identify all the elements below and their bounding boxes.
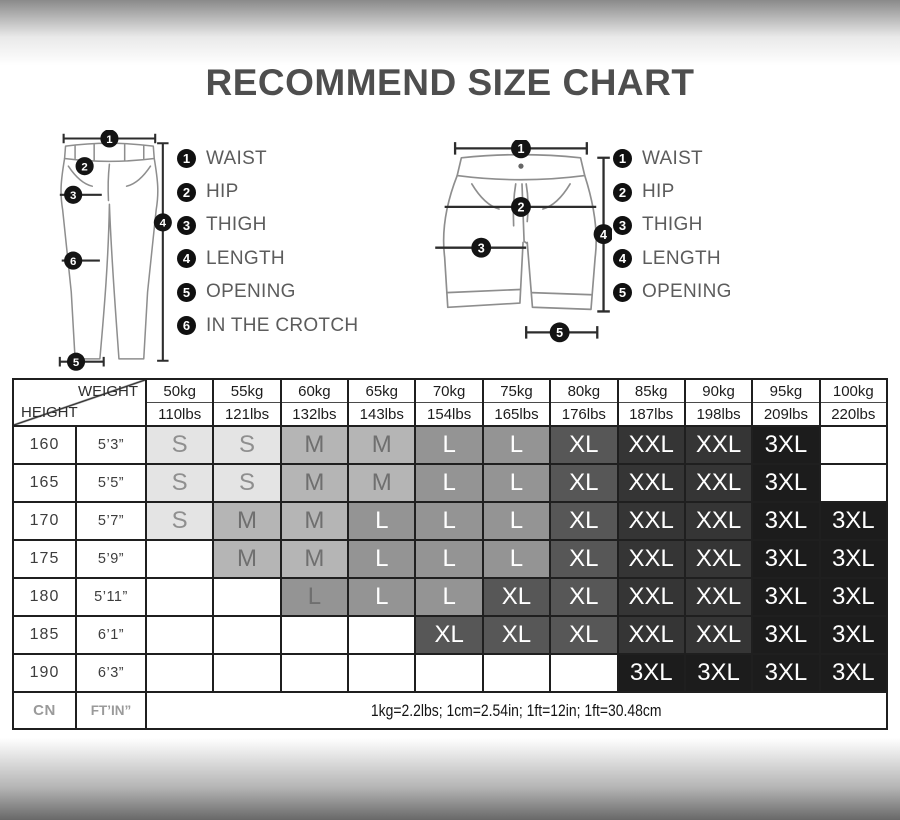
legend-item: 4 LENGTH xyxy=(613,242,732,275)
size-cell: XL xyxy=(550,464,617,502)
size-cell: XXL xyxy=(618,464,685,502)
height-ftin-cell: 6’1” xyxy=(76,616,146,654)
size-cell: XL xyxy=(550,616,617,654)
legend-item: 3 THIGH xyxy=(613,209,732,242)
size-cell: L xyxy=(415,502,482,540)
legend-label: WAIST xyxy=(206,148,267,170)
size-cell: M xyxy=(281,502,348,540)
weight-kg-header: 75kg xyxy=(483,379,550,403)
weight-lbs-header: 143lbs xyxy=(348,403,415,427)
size-cell: XXL xyxy=(618,426,685,464)
legend-label: OPENING xyxy=(206,281,296,303)
weight-kg-header: 90kg xyxy=(685,379,752,403)
pants-marker-3: 3 xyxy=(64,186,82,204)
height-ftin-cell: 5’7” xyxy=(76,502,146,540)
size-cell: L xyxy=(483,464,550,502)
size-cell: 3XL xyxy=(752,654,819,692)
size-cell: XL xyxy=(550,540,617,578)
weight-lbs-header: 209lbs xyxy=(752,403,819,427)
pants-outline xyxy=(61,143,158,359)
weight-kg-header: 50kg xyxy=(146,379,213,403)
size-cell: 3XL xyxy=(820,654,887,692)
size-cell xyxy=(213,616,280,654)
size-cell: M xyxy=(213,540,280,578)
size-cell: 3XL xyxy=(820,616,887,654)
legend-label: THIGH xyxy=(642,214,703,236)
size-cell: S xyxy=(146,426,213,464)
svg-text:4: 4 xyxy=(160,218,167,230)
size-cell: L xyxy=(483,502,550,540)
cn-unit-label: CN xyxy=(13,692,76,729)
numbered-disc: 3 xyxy=(177,216,196,235)
size-cell: S xyxy=(146,502,213,540)
numbered-disc: 1 xyxy=(613,149,632,168)
weight-lbs-header: 154lbs xyxy=(415,403,482,427)
height-cm-cell: 160 xyxy=(13,426,76,464)
size-cell xyxy=(415,654,482,692)
height-cm-cell: 175 xyxy=(13,540,76,578)
footer-row: CN FT’IN” 1kg=2.2lbs; 1cm=2.54in; 1ft=12… xyxy=(13,692,887,729)
svg-text:3: 3 xyxy=(478,241,485,255)
weight-lbs-header: 132lbs xyxy=(281,403,348,427)
size-cell: XXL xyxy=(685,540,752,578)
size-cell: 3XL xyxy=(685,654,752,692)
height-cm-cell: 190 xyxy=(13,654,76,692)
weight-lbs-header: 110lbs xyxy=(146,403,213,427)
size-cell: M xyxy=(281,464,348,502)
legend-item: 6 IN THE CROTCH xyxy=(177,309,358,342)
numbered-disc: 2 xyxy=(177,183,196,202)
size-cell: XL xyxy=(550,426,617,464)
size-cell: L xyxy=(483,540,550,578)
size-cell xyxy=(820,426,887,464)
size-cell: M xyxy=(348,426,415,464)
size-cell: XL xyxy=(415,616,482,654)
size-cell: XXL xyxy=(685,616,752,654)
weight-axis-label: WEIGHT xyxy=(78,383,138,400)
weight-kg-header: 85kg xyxy=(618,379,685,403)
pants-marker-1: 1 xyxy=(100,130,118,148)
pants-marker-2: 2 xyxy=(76,157,94,175)
weight-kg-header: 55kg xyxy=(213,379,280,403)
size-cell: L xyxy=(483,426,550,464)
weight-lbs-header: 121lbs xyxy=(213,403,280,427)
size-cell xyxy=(348,654,415,692)
size-cell: XL xyxy=(550,578,617,616)
size-cell: XXL xyxy=(685,502,752,540)
size-cell: 3XL xyxy=(618,654,685,692)
legend-label: THIGH xyxy=(206,214,267,236)
corner-header-cell: WEIGHT HEIGHT xyxy=(13,379,146,426)
size-cell: 3XL xyxy=(752,426,819,464)
numbered-disc: 6 xyxy=(177,316,196,335)
size-cell: 3XL xyxy=(752,540,819,578)
height-ftin-cell: 5’5” xyxy=(76,464,146,502)
size-cell xyxy=(820,464,887,502)
size-cell: 3XL xyxy=(752,578,819,616)
svg-text:3: 3 xyxy=(70,190,76,202)
height-cm-cell: 165 xyxy=(13,464,76,502)
height-ftin-cell: 5’9” xyxy=(76,540,146,578)
pants-marker-5: 5 xyxy=(67,353,85,371)
svg-text:6: 6 xyxy=(70,256,76,268)
shorts-line-art: 1 2 3 4 5 xyxy=(432,140,612,347)
numbered-disc: 4 xyxy=(177,249,196,268)
pants-diagram: 1 2 3 4 6 5 xyxy=(56,130,180,379)
pants-marker-6: 6 xyxy=(64,252,82,270)
height-cm-cell: 170 xyxy=(13,502,76,540)
size-cell: S xyxy=(146,464,213,502)
size-cell: M xyxy=(348,464,415,502)
table-row: 1856’1”XLXLXLXXLXXL3XL3XL xyxy=(13,616,887,654)
size-cell: L xyxy=(348,578,415,616)
size-cell xyxy=(348,616,415,654)
size-cell: XL xyxy=(550,502,617,540)
legend-label: WAIST xyxy=(642,148,703,170)
size-cell: 3XL xyxy=(752,502,819,540)
size-cell: S xyxy=(213,426,280,464)
shorts-legend: 1 WAIST 2 HIP 3 THIGH 4 LENGTH 5 OPENING xyxy=(613,142,732,309)
page-title: RECOMMEND SIZE CHART xyxy=(0,62,900,104)
shorts-outline xyxy=(444,155,597,310)
size-cell: 3XL xyxy=(820,540,887,578)
svg-text:5: 5 xyxy=(556,326,563,340)
legend-label: HIP xyxy=(206,181,239,203)
shorts-diagram: 1 2 3 4 5 xyxy=(432,140,612,352)
numbered-disc: 2 xyxy=(613,183,632,202)
size-cell: M xyxy=(281,426,348,464)
size-cell: 3XL xyxy=(820,578,887,616)
height-cm-cell: 180 xyxy=(13,578,76,616)
size-cell xyxy=(213,654,280,692)
numbered-disc: 5 xyxy=(613,283,632,302)
pants-marker-4: 4 xyxy=(154,213,172,231)
height-ftin-cell: 5’11” xyxy=(76,578,146,616)
size-cell xyxy=(550,654,617,692)
shorts-marker-5: 5 xyxy=(550,322,570,342)
legend-item: 5 OPENING xyxy=(613,276,732,309)
ftin-unit-label: FT’IN” xyxy=(76,692,146,729)
weight-kg-header: 100kg xyxy=(820,379,887,403)
conversion-note: 1kg=2.2lbs; 1cm=2.54in; 1ft=12in; 1ft=30… xyxy=(146,692,887,729)
size-cell: 3XL xyxy=(820,502,887,540)
size-chart-page: RECOMMEND SIZE CHART 1 xyxy=(0,0,900,820)
weight-kg-row: WEIGHT HEIGHT 50kg55kg60kg65kg70kg75kg80… xyxy=(13,379,887,403)
legend-item: 1 WAIST xyxy=(613,142,732,175)
size-cell: XXL xyxy=(685,426,752,464)
size-cell xyxy=(483,654,550,692)
svg-text:5: 5 xyxy=(73,357,80,369)
shorts-marker-2: 2 xyxy=(511,197,531,217)
size-cell xyxy=(146,540,213,578)
numbered-disc: 3 xyxy=(613,216,632,235)
size-cell xyxy=(146,654,213,692)
table-row: 1655’5”SSMMLLXLXXLXXL3XL xyxy=(13,464,887,502)
height-cm-cell: 185 xyxy=(13,616,76,654)
weight-lbs-header: 187lbs xyxy=(618,403,685,427)
size-cell: XXL xyxy=(685,464,752,502)
table-row: 1705’7”SMMLLLXLXXLXXL3XL3XL xyxy=(13,502,887,540)
numbered-disc: 4 xyxy=(613,249,632,268)
svg-text:2: 2 xyxy=(81,161,87,173)
legend-label: IN THE CROTCH xyxy=(206,315,358,337)
weight-kg-header: 80kg xyxy=(550,379,617,403)
size-cell: XXL xyxy=(618,502,685,540)
size-cell: L xyxy=(415,578,482,616)
size-cell xyxy=(281,654,348,692)
size-cell xyxy=(146,578,213,616)
size-cell: XXL xyxy=(618,616,685,654)
legend-label: HIP xyxy=(642,181,675,203)
weight-lbs-header: 176lbs xyxy=(550,403,617,427)
weight-kg-header: 60kg xyxy=(281,379,348,403)
svg-text:1: 1 xyxy=(106,134,113,146)
height-ftin-cell: 5’3” xyxy=(76,426,146,464)
size-cell: S xyxy=(213,464,280,502)
size-cell: L xyxy=(348,540,415,578)
table-row: 1805’11”LLLXLXLXXLXXL3XL3XL xyxy=(13,578,887,616)
shorts-marker-1: 1 xyxy=(511,140,531,158)
legend-item: 4 LENGTH xyxy=(177,242,358,275)
legend-label: LENGTH xyxy=(642,248,721,270)
size-cell: L xyxy=(415,540,482,578)
table-row: 1906’3”3XL3XL3XL3XL xyxy=(13,654,887,692)
height-axis-label: HEIGHT xyxy=(21,404,78,421)
size-cell: L xyxy=(415,464,482,502)
shorts-marker-3: 3 xyxy=(471,238,491,258)
height-ftin-cell: 6’3” xyxy=(76,654,146,692)
legend-item: 2 HIP xyxy=(177,175,358,208)
size-cell xyxy=(213,578,280,616)
table-row: 1755’9”MMLLLXLXXLXXL3XL3XL xyxy=(13,540,887,578)
svg-text:2: 2 xyxy=(517,201,524,215)
pants-legend: 1 WAIST 2 HIP 3 THIGH 4 LENGTH 5 OPENING… xyxy=(177,142,358,342)
size-table: WEIGHT HEIGHT 50kg55kg60kg65kg70kg75kg80… xyxy=(12,378,888,730)
size-cell: XL xyxy=(483,578,550,616)
table-row: 1605’3”SSMMLLXLXXLXXL3XL xyxy=(13,426,887,464)
size-cell: M xyxy=(281,540,348,578)
size-cell: L xyxy=(415,426,482,464)
size-cell xyxy=(281,616,348,654)
size-cell: L xyxy=(348,502,415,540)
legend-item: 1 WAIST xyxy=(177,142,358,175)
size-cell xyxy=(146,616,213,654)
numbered-disc: 1 xyxy=(177,149,196,168)
svg-text:1: 1 xyxy=(517,142,524,156)
legend-item: 5 OPENING xyxy=(177,276,358,309)
weight-kg-header: 70kg xyxy=(415,379,482,403)
legend-item: 2 HIP xyxy=(613,175,732,208)
svg-text:4: 4 xyxy=(600,228,607,242)
size-cell: XXL xyxy=(685,578,752,616)
legend-item: 3 THIGH xyxy=(177,209,358,242)
size-cell: 3XL xyxy=(752,616,819,654)
weight-lbs-header: 198lbs xyxy=(685,403,752,427)
size-cell: 3XL xyxy=(752,464,819,502)
numbered-disc: 5 xyxy=(177,283,196,302)
pants-line-art: 1 2 3 4 6 5 xyxy=(56,130,180,374)
weight-lbs-header: 220lbs xyxy=(820,403,887,427)
size-cell: XL xyxy=(483,616,550,654)
legend-label: OPENING xyxy=(642,281,732,303)
legend-label: LENGTH xyxy=(206,248,285,270)
size-cell: XXL xyxy=(618,578,685,616)
weight-lbs-header: 165lbs xyxy=(483,403,550,427)
weight-kg-header: 65kg xyxy=(348,379,415,403)
size-cell: L xyxy=(281,578,348,616)
size-cell: XXL xyxy=(618,540,685,578)
size-cell: M xyxy=(213,502,280,540)
weight-kg-header: 95kg xyxy=(752,379,819,403)
